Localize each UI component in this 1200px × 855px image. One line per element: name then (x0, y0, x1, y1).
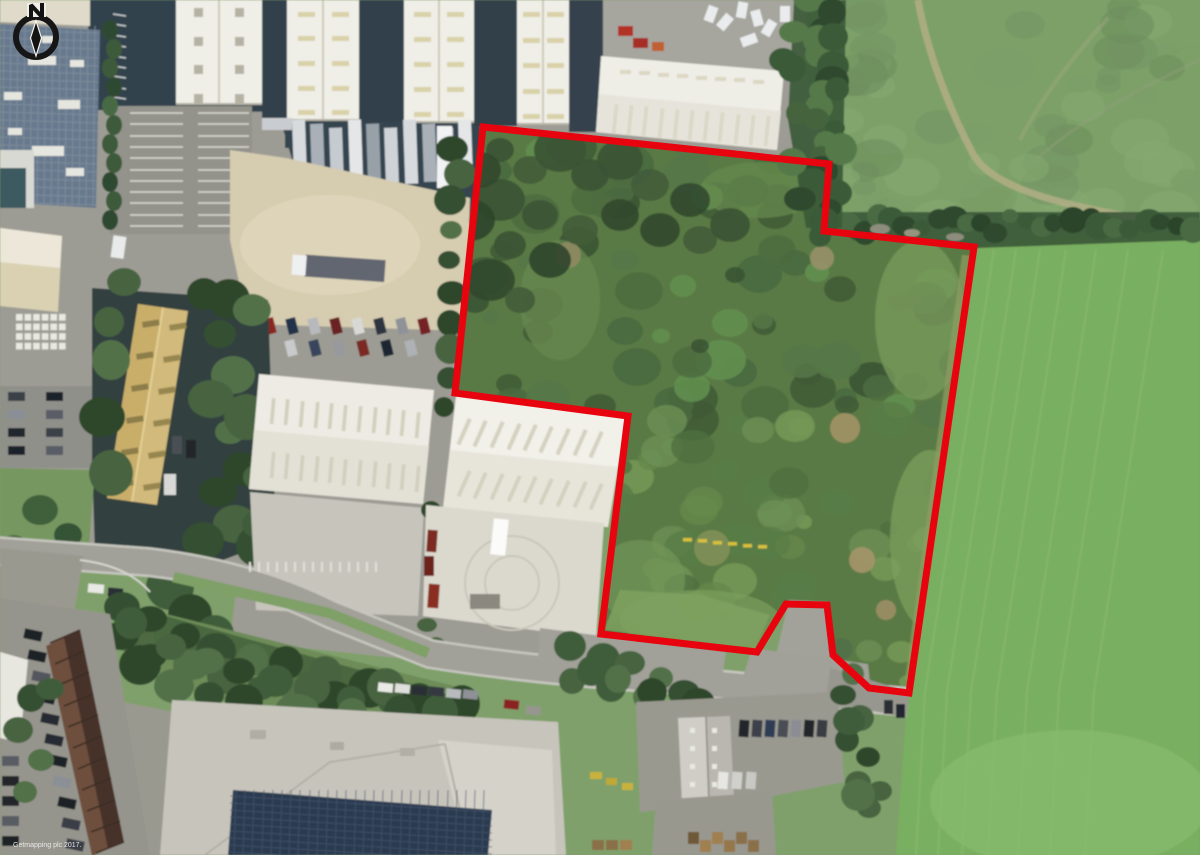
svg-text:Getmapping plc 2017.: Getmapping plc 2017. (13, 842, 82, 849)
